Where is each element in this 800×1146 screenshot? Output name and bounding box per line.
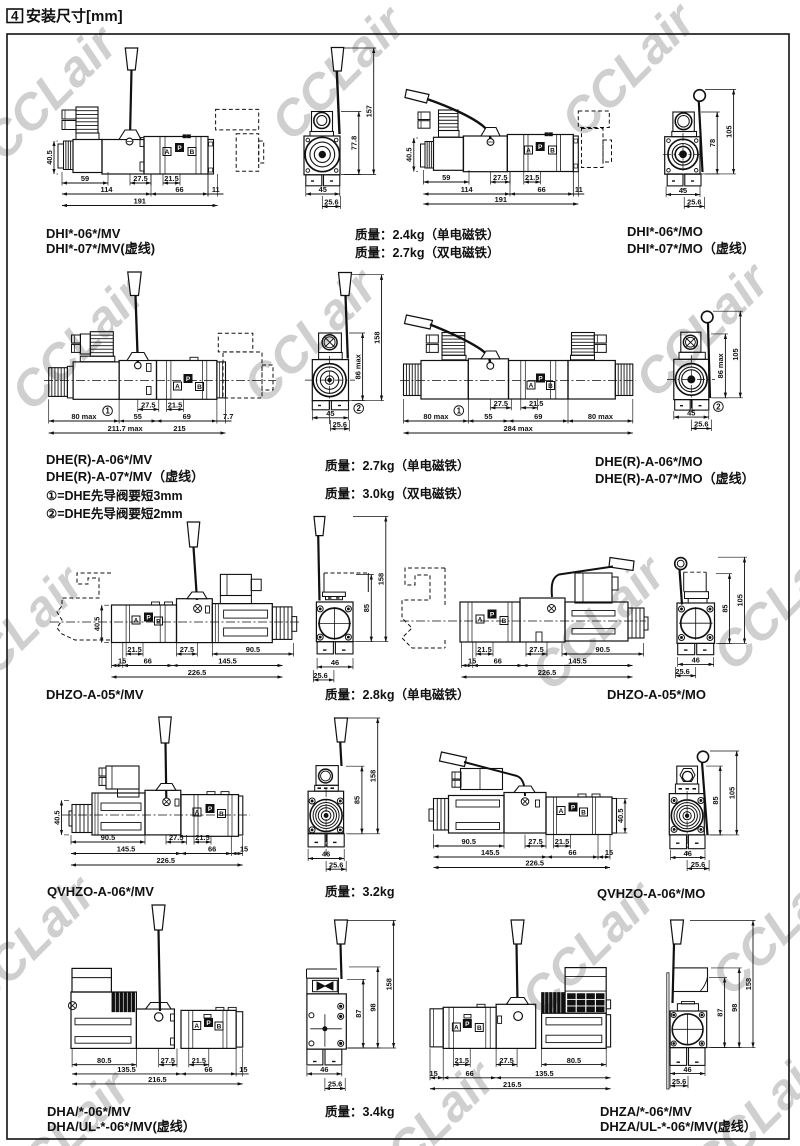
svg-text:质量：2.4kg（单电磁铁）: 质量：2.4kg（单电磁铁） [355,227,499,242]
svg-text:114: 114 [101,185,114,194]
svg-text:P: P [465,1021,470,1028]
svg-text:90.5: 90.5 [101,833,115,842]
svg-text:69: 69 [534,412,542,421]
svg-text:145.5: 145.5 [481,848,500,857]
svg-text:1: 1 [457,406,462,415]
svg-text:25.6: 25.6 [691,860,705,869]
svg-text:B: B [502,618,507,625]
svg-text:59: 59 [81,174,89,183]
svg-text:A: A [478,617,483,624]
svg-text:P: P [177,145,182,152]
svg-text:27.5: 27.5 [493,173,507,182]
svg-text:A: A [194,1023,199,1030]
svg-text:158: 158 [744,978,753,990]
svg-text:安装尺寸[mm]: 安装尺寸[mm] [26,7,123,25]
svg-text:DHZA/*-06*/MV: DHZA/*-06*/MV [600,1104,692,1119]
svg-text:B: B [190,149,195,156]
svg-text:B: B [548,383,553,390]
svg-text:45: 45 [319,185,327,194]
svg-text:105: 105 [731,348,740,360]
svg-text:DHE(R)-A-06*/MO: DHE(R)-A-06*/MO [595,454,703,469]
svg-text:80 max: 80 max [71,412,97,421]
svg-text:226.5: 226.5 [538,668,557,677]
svg-text:211.7 max: 211.7 max [108,424,144,433]
svg-text:DHI*-06*/MV: DHI*-06*/MV [46,226,121,241]
svg-text:质量：2.7kg（单电磁铁）: 质量：2.7kg（单电磁铁） [325,458,469,473]
svg-text:2: 2 [716,402,721,411]
svg-text:②=DHE先导阀要短2mm: ②=DHE先导阀要短2mm [46,506,183,521]
svg-text:A: A [529,383,534,390]
svg-text:55: 55 [134,412,142,421]
svg-text:A: A [165,149,170,156]
svg-text:46: 46 [683,1065,691,1074]
svg-text:105: 105 [735,594,744,606]
svg-text:11: 11 [575,185,583,194]
svg-text:59: 59 [442,173,450,182]
svg-text:25.6: 25.6 [329,860,343,869]
svg-text:25.6: 25.6 [328,1080,342,1089]
svg-text:1: 1 [105,407,110,416]
svg-text:DHE(R)-A-06*/MV: DHE(R)-A-06*/MV [46,452,153,467]
svg-text:P: P [208,806,213,813]
svg-text:145.5: 145.5 [218,657,237,666]
svg-text:A: A [134,618,139,625]
svg-text:25.6: 25.6 [672,1077,686,1086]
svg-text:15: 15 [240,845,248,854]
svg-text:40.5: 40.5 [616,809,625,823]
svg-text:158: 158 [377,573,386,585]
svg-text:15: 15 [605,848,613,857]
svg-text:87: 87 [715,1008,724,1016]
svg-text:40.5: 40.5 [52,810,61,824]
svg-text:质量：3.2kg: 质量：3.2kg [325,884,394,899]
svg-text:21.5: 21.5 [164,174,178,183]
svg-text:P: P [538,144,543,151]
svg-text:45: 45 [687,408,695,417]
svg-text:40.5: 40.5 [405,148,414,162]
svg-text:78: 78 [708,139,717,147]
svg-text:90.5: 90.5 [596,645,610,654]
svg-text:21.5: 21.5 [477,645,491,654]
svg-text:85: 85 [720,604,729,612]
svg-text:98: 98 [369,1003,378,1011]
svg-text:P: P [146,615,151,622]
svg-text:25.6: 25.6 [333,420,347,429]
svg-text:66: 66 [538,185,546,194]
svg-text:46: 46 [322,850,330,859]
svg-text:25.6: 25.6 [324,198,338,207]
svg-text:21.5: 21.5 [525,173,539,182]
svg-text:55: 55 [484,412,492,421]
svg-text:B: B [217,1024,222,1031]
svg-text:66: 66 [144,657,152,666]
svg-text:21.5: 21.5 [555,837,569,846]
svg-text:66: 66 [466,1069,474,1078]
svg-text:105: 105 [728,787,737,799]
svg-text:DHA/*-06*/MV: DHA/*-06*/MV [47,1104,131,1119]
svg-text:QVHZO-A-06*/MO: QVHZO-A-06*/MO [597,886,705,901]
svg-text:27.5: 27.5 [499,1056,513,1065]
svg-text:46: 46 [692,656,700,665]
svg-text:A: A [195,810,200,817]
svg-text:85: 85 [711,796,720,804]
svg-text:27.5: 27.5 [133,174,147,183]
svg-text:284 max: 284 max [504,424,534,433]
svg-text:114: 114 [461,185,474,194]
svg-text:46: 46 [320,1065,328,1074]
svg-text:25.6: 25.6 [675,667,689,676]
svg-text:B: B [197,384,202,391]
svg-text:P: P [571,805,576,812]
svg-text:B: B [581,810,586,817]
svg-text:A: A [454,1025,459,1032]
svg-text:90.5: 90.5 [462,837,476,846]
svg-text:DHI*-06*/MO: DHI*-06*/MO [627,224,703,239]
svg-text:P: P [490,612,495,619]
svg-text:86 max: 86 max [353,353,362,379]
svg-text:DHZA/UL-*-06*/MV(虚线）: DHZA/UL-*-06*/MV(虚线） [600,1119,757,1134]
svg-text:DHE(R)-A-07*/MV（虚线）: DHE(R)-A-07*/MV（虚线） [46,469,204,484]
svg-text:191: 191 [495,195,507,204]
svg-text:86 max: 86 max [716,352,725,378]
svg-text:21.5: 21.5 [168,401,182,410]
svg-text:216.5: 216.5 [148,1075,167,1084]
svg-text:80 max: 80 max [423,412,449,421]
svg-text:85: 85 [362,604,371,612]
svg-text:158: 158 [369,770,378,782]
svg-text:85: 85 [353,796,362,804]
svg-text:DHZO-A-05*/MO: DHZO-A-05*/MO [607,687,706,702]
svg-text:P: P [538,376,543,383]
svg-text:DHA/UL-*-06*/MV(虚线）: DHA/UL-*-06*/MV(虚线） [47,1119,196,1134]
svg-text:27.5: 27.5 [141,401,155,410]
svg-text:158: 158 [384,978,393,990]
svg-text:2: 2 [356,404,361,413]
svg-text:质量：2.8kg（单电磁铁）: 质量：2.8kg（单电磁铁） [325,687,469,702]
svg-text:15: 15 [429,1069,437,1078]
svg-text:P: P [206,1020,211,1027]
svg-text:21.5: 21.5 [192,1056,206,1065]
svg-text:A: A [526,148,531,155]
svg-text:质量：3.4kg: 质量：3.4kg [325,1104,394,1119]
svg-text:46: 46 [331,658,339,667]
svg-text:45: 45 [326,409,334,418]
svg-text:40.5: 40.5 [93,617,102,631]
svg-text:226.5: 226.5 [188,668,207,677]
svg-text:66: 66 [568,848,576,857]
svg-text:66: 66 [204,1065,212,1074]
svg-text:质量：2.7kg（双电磁铁）: 质量：2.7kg（双电磁铁） [355,245,499,260]
svg-text:80.5: 80.5 [97,1056,111,1065]
svg-text:27.5: 27.5 [494,399,508,408]
svg-text:21.5: 21.5 [195,833,209,842]
svg-text:15: 15 [239,1065,247,1074]
svg-text:P: P [186,376,191,383]
svg-text:80 max: 80 max [588,412,614,421]
svg-text:A: A [175,384,180,391]
svg-text:7.7: 7.7 [223,412,233,421]
svg-text:11: 11 [212,185,220,194]
svg-text:25.6: 25.6 [694,420,708,429]
svg-text:15: 15 [118,657,126,666]
svg-text:145.5: 145.5 [568,657,587,666]
svg-text:4: 4 [11,9,19,24]
svg-text:27.5: 27.5 [169,833,183,842]
svg-text:A: A [559,808,564,815]
svg-text:21.5: 21.5 [455,1056,469,1065]
svg-text:157: 157 [365,105,374,117]
svg-text:98: 98 [730,1004,739,1012]
svg-text:B: B [477,1025,482,1032]
svg-text:80.5: 80.5 [567,1056,581,1065]
svg-text:69: 69 [183,412,191,421]
svg-text:87: 87 [354,1010,363,1018]
svg-text:45: 45 [679,186,687,195]
svg-text:158: 158 [372,331,381,343]
svg-text:77.8: 77.8 [350,136,359,150]
svg-text:QVHZO-A-06*/MV: QVHZO-A-06*/MV [47,884,154,899]
svg-text:46: 46 [684,849,692,858]
svg-text:DHZO-A-05*/MV: DHZO-A-05*/MV [46,687,144,702]
svg-text:135.5: 135.5 [535,1069,554,1078]
svg-text:DHE(R)-A-07*/MO（虚线）: DHE(R)-A-07*/MO（虚线） [595,471,755,486]
svg-text:66: 66 [208,845,216,854]
svg-text:66: 66 [494,657,502,666]
svg-text:25.6: 25.6 [313,671,327,680]
svg-text:DHI*-07*/MO（虚线）: DHI*-07*/MO（虚线） [627,241,755,256]
svg-text:105: 105 [724,126,733,138]
svg-text:40.5: 40.5 [45,150,54,164]
svg-text:226.5: 226.5 [526,859,545,868]
svg-text:216.5: 216.5 [503,1080,522,1089]
svg-text:27.5: 27.5 [529,645,543,654]
svg-text:21.5: 21.5 [127,645,141,654]
svg-text:226.5: 226.5 [157,856,176,865]
svg-text:145.5: 145.5 [117,845,136,854]
svg-text:90.5: 90.5 [246,645,260,654]
svg-text:B: B [550,148,555,155]
svg-text:27.5: 27.5 [161,1056,175,1065]
svg-text:质量：3.0kg（双电磁铁）: 质量：3.0kg（双电磁铁） [325,486,469,501]
svg-text:①=DHE先导阀要短3mm: ①=DHE先导阀要短3mm [46,488,183,503]
svg-text:25.6: 25.6 [687,198,701,207]
svg-text:15: 15 [468,657,476,666]
svg-text:27.5: 27.5 [528,837,542,846]
svg-text:66: 66 [175,185,183,194]
svg-text:21.5: 21.5 [529,399,543,408]
svg-text:215: 215 [173,424,185,433]
svg-text:191: 191 [134,197,146,206]
svg-text:135.5: 135.5 [117,1065,136,1074]
svg-text:DHI*-07*/MV(虚线): DHI*-07*/MV(虚线) [46,241,155,256]
svg-text:27.5: 27.5 [180,645,194,654]
